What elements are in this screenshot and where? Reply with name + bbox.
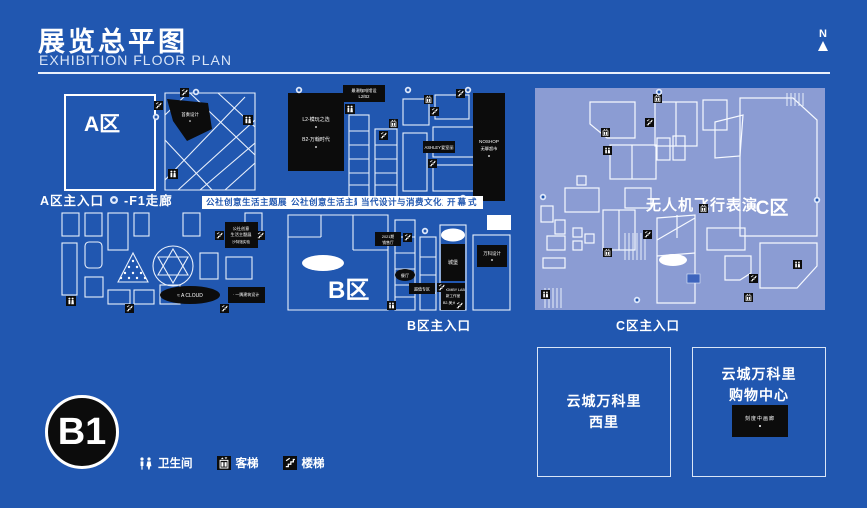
- legend-elevator-label: 客梯: [236, 455, 259, 471]
- zone-b-vanke-label: 万科设计: [483, 250, 501, 257]
- elevator-icon: [389, 119, 398, 128]
- stairs-icon: [215, 231, 224, 240]
- zone-b-sales-label: 2021期 销售厅: [375, 232, 401, 246]
- toilet-icon: [345, 104, 355, 114]
- stairs-icon: [403, 233, 412, 242]
- zone-a-commune-box: 公社创意 生活主题展 沙特馆实验: [225, 222, 258, 248]
- mall-block-line1: 云城万科里: [693, 364, 825, 385]
- stairs-icon: [455, 301, 464, 310]
- zone-c-hall-label: 星光厅: [666, 257, 680, 264]
- zone-b-ashley-label: ASHLEY爱室丽: [424, 144, 453, 151]
- svg-text:公社创意: 公社创意: [233, 225, 250, 232]
- compass-arrow-icon: [818, 41, 828, 51]
- marker-dot-icon: [109, 195, 119, 205]
- svg-text:新工作室: 新工作室: [446, 293, 461, 298]
- west-block: 云城万科里 西里: [537, 347, 671, 477]
- marker-dot-icon: [422, 228, 428, 234]
- stairs-icon: [456, 89, 465, 98]
- stairs-icon: [437, 283, 446, 292]
- zone-a-studio-block: [167, 99, 212, 141]
- stairs-icon: [749, 274, 758, 283]
- zone-b-vanke-block: [477, 245, 507, 267]
- legend-elevator: 客梯: [217, 455, 259, 471]
- zone-b-opening-badge: 开幕式: [443, 196, 483, 209]
- svg-text:L2-模玩之选: L2-模玩之选: [302, 116, 329, 123]
- stairs-icon: [125, 304, 134, 313]
- marker-dot-icon: [634, 297, 640, 303]
- zone-b-theater-label: 大剧场: [446, 233, 460, 240]
- floor-badge: B1: [45, 395, 119, 469]
- elevator-icon: [603, 248, 612, 257]
- zone-b-parking-label: 白象车场: [313, 261, 333, 268]
- svg-text:沙特馆实验: 沙特馆实验: [232, 239, 250, 244]
- legend-stairs: 楼梯: [283, 455, 325, 471]
- zone-b-cafe-label: 最潮咖啡馆设 L2/B2: [343, 85, 385, 102]
- legend-stairs-label: 楼梯: [302, 455, 325, 471]
- legend-toilet: 卫生间: [138, 455, 193, 471]
- zone-a-studio-label: 首奏设计: [181, 111, 199, 118]
- toilet-icon: [541, 290, 550, 299]
- toilet-icon: [603, 146, 612, 155]
- zone-a-name: A区: [84, 113, 120, 136]
- stairs-icon: [256, 231, 265, 240]
- zone-c-name: C区: [756, 198, 789, 219]
- svg-text:销售厅: 销售厅: [382, 240, 394, 245]
- toilet-icon: [138, 457, 153, 470]
- zone-c-map: 星光厅 无人机飞行表演 C区: [535, 88, 825, 310]
- zone-b-deal-label: 超值专区: [414, 286, 430, 292]
- mall-block-line2: 购物中心: [693, 385, 825, 406]
- svg-text:NOSHOP: NOSHOP: [479, 139, 499, 144]
- zone-b-store-box: L2-模玩之选 B2-万翰时代: [288, 93, 344, 171]
- zone-c-entrance-label: C区主入口: [616, 315, 680, 334]
- stairs-icon: [428, 159, 437, 168]
- elevator-icon: [424, 95, 433, 104]
- marker-dot-icon: [193, 89, 199, 95]
- marker-dot-icon: [540, 194, 546, 200]
- marker-dot-icon: [656, 89, 662, 95]
- zone-b-noshop-block: NOSHOP 无聊超市: [473, 93, 505, 201]
- stairs-icon: [379, 131, 388, 140]
- zone-b-restaurant-label: 餐厅: [401, 272, 409, 279]
- zone-a-triangle-sculpture: [118, 253, 148, 282]
- legend-toilet-label: 卫生间: [158, 455, 193, 471]
- svg-text:L2/B2: L2/B2: [359, 94, 371, 99]
- legend: 卫生间 客梯 楼梯: [138, 455, 325, 471]
- stairs-icon: [180, 88, 189, 97]
- zone-c-small-label-block: [687, 274, 700, 283]
- zone-a-entrance-row: A区主入口 -F1走廊: [40, 190, 173, 209]
- compass-north-label: N: [814, 28, 832, 40]
- svg-text:生活主题展: 生活主题展: [231, 231, 253, 238]
- svg-text:无聊超市: 无聊超市: [481, 145, 498, 152]
- svg-text:B2-万翰时代: B2-万翰时代: [302, 136, 330, 143]
- page-subtitle: EXHIBITION FLOOR PLAN: [39, 52, 232, 68]
- stairs-icon: [643, 230, 652, 239]
- zone-b-entrance-label: B区主入口: [407, 315, 471, 334]
- marker-dot-icon: [296, 87, 302, 93]
- west-block-line2: 西里: [538, 412, 670, 433]
- header-divider: [38, 72, 830, 74]
- west-block-line1: 云城万科里: [538, 391, 670, 412]
- marker-dot-icon: [153, 114, 159, 120]
- mall-inner-label: 刻度中画廊: [745, 416, 775, 423]
- marker-dot-icon: [814, 197, 820, 203]
- zone-a-entrance-label: A区主入口: [40, 190, 104, 209]
- compass: N: [814, 28, 832, 51]
- toilet-icon: [387, 301, 396, 310]
- zone-a-arch-label: · 一隅建筑设计: [233, 291, 259, 297]
- elevator-icon: [217, 456, 231, 470]
- marker-dot-icon: [405, 87, 411, 93]
- mall-block: 云城万科里 购物中心 刻度中画廊: [692, 347, 826, 477]
- zone-a-exhibit-badge: 公社创意生活主题展: [202, 196, 291, 209]
- zone-a-a-cloud-label: ≈ A CLOUD: [177, 293, 203, 299]
- toilet-icon: [793, 260, 802, 269]
- elevator-icon: [653, 94, 662, 103]
- marker-dot-icon: [759, 425, 761, 427]
- stairs-icon: [283, 456, 297, 470]
- zone-a-hexagram-sculpture: [153, 246, 193, 286]
- zone-b-castle-label: 城堡: [448, 259, 458, 266]
- svg-text:2021期: 2021期: [382, 234, 394, 239]
- zone-a-corridor-label: -F1走廊: [124, 190, 173, 209]
- mall-inner-block: 刻度中画廊: [732, 405, 788, 437]
- toilet-icon: [168, 169, 178, 179]
- marker-dot-icon: [465, 87, 471, 93]
- stairs-icon: [645, 118, 654, 127]
- zone-b-name: B区: [328, 277, 369, 304]
- stairs-icon: [154, 101, 163, 110]
- elevator-icon: [601, 128, 610, 137]
- toilet-icon: [66, 296, 76, 306]
- svg-text:最潮咖啡馆设: 最潮咖啡馆设: [351, 87, 377, 94]
- stairs-icon: [430, 107, 439, 116]
- floor-plan-poster: 展览总平图 EXHIBITION FLOOR PLAN N: [0, 0, 867, 508]
- elevator-icon: [744, 293, 753, 302]
- elevator-icon: [699, 204, 708, 213]
- stairs-icon: [220, 304, 229, 313]
- toilet-icon: [243, 115, 253, 125]
